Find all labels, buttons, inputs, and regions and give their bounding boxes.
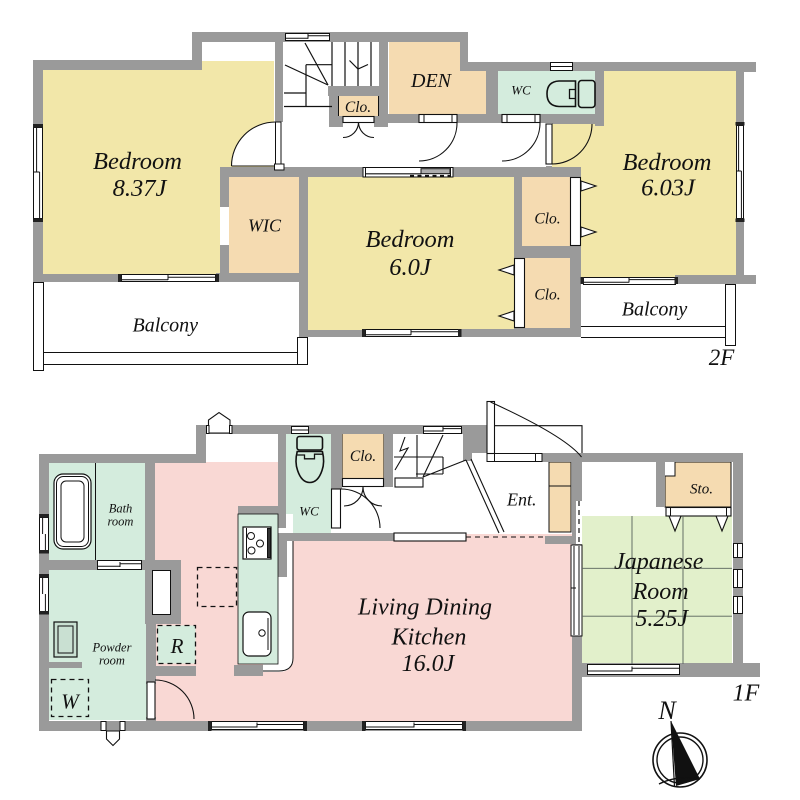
svg-text:Bath: Bath	[109, 502, 133, 516]
svg-text:Ent.: Ent.	[506, 490, 537, 510]
svg-text:N: N	[657, 696, 677, 725]
svg-text:5.25J: 5.25J	[635, 606, 689, 632]
svg-text:Sto.: Sto.	[690, 482, 713, 498]
svg-text:Room: Room	[632, 579, 689, 605]
svg-text:Clo.: Clo.	[350, 448, 376, 465]
svg-text:room: room	[108, 515, 134, 529]
svg-text:W: W	[61, 690, 81, 714]
svg-text:Clo.: Clo.	[534, 287, 560, 304]
svg-text:Balcony: Balcony	[622, 299, 688, 321]
svg-text:Clo.: Clo.	[345, 99, 371, 116]
svg-text:Living Dining: Living Dining	[357, 595, 492, 621]
svg-text:room: room	[99, 654, 125, 668]
svg-text:WC: WC	[299, 504, 319, 519]
svg-text:Powder: Powder	[92, 641, 132, 655]
svg-text:6.0J: 6.0J	[389, 254, 432, 281]
svg-text:Kitchen: Kitchen	[391, 625, 467, 651]
svg-text:2F: 2F	[709, 345, 736, 370]
svg-text:WC: WC	[511, 83, 531, 98]
svg-text:16.0J: 16.0J	[402, 651, 456, 677]
svg-text:6.03J: 6.03J	[641, 175, 696, 202]
svg-text:Bedroom: Bedroom	[623, 149, 712, 176]
svg-text:Bedroom: Bedroom	[93, 148, 182, 175]
svg-text:DEN: DEN	[410, 70, 453, 92]
svg-text:1F: 1F	[733, 681, 760, 707]
svg-text:Japanese: Japanese	[614, 549, 704, 575]
svg-text:Clo.: Clo.	[534, 211, 560, 228]
svg-text:Balcony: Balcony	[133, 315, 199, 337]
svg-text:Bedroom: Bedroom	[366, 226, 455, 253]
svg-text:R: R	[170, 634, 184, 658]
svg-text:WIC: WIC	[248, 216, 282, 236]
svg-text:8.37J: 8.37J	[113, 175, 168, 202]
